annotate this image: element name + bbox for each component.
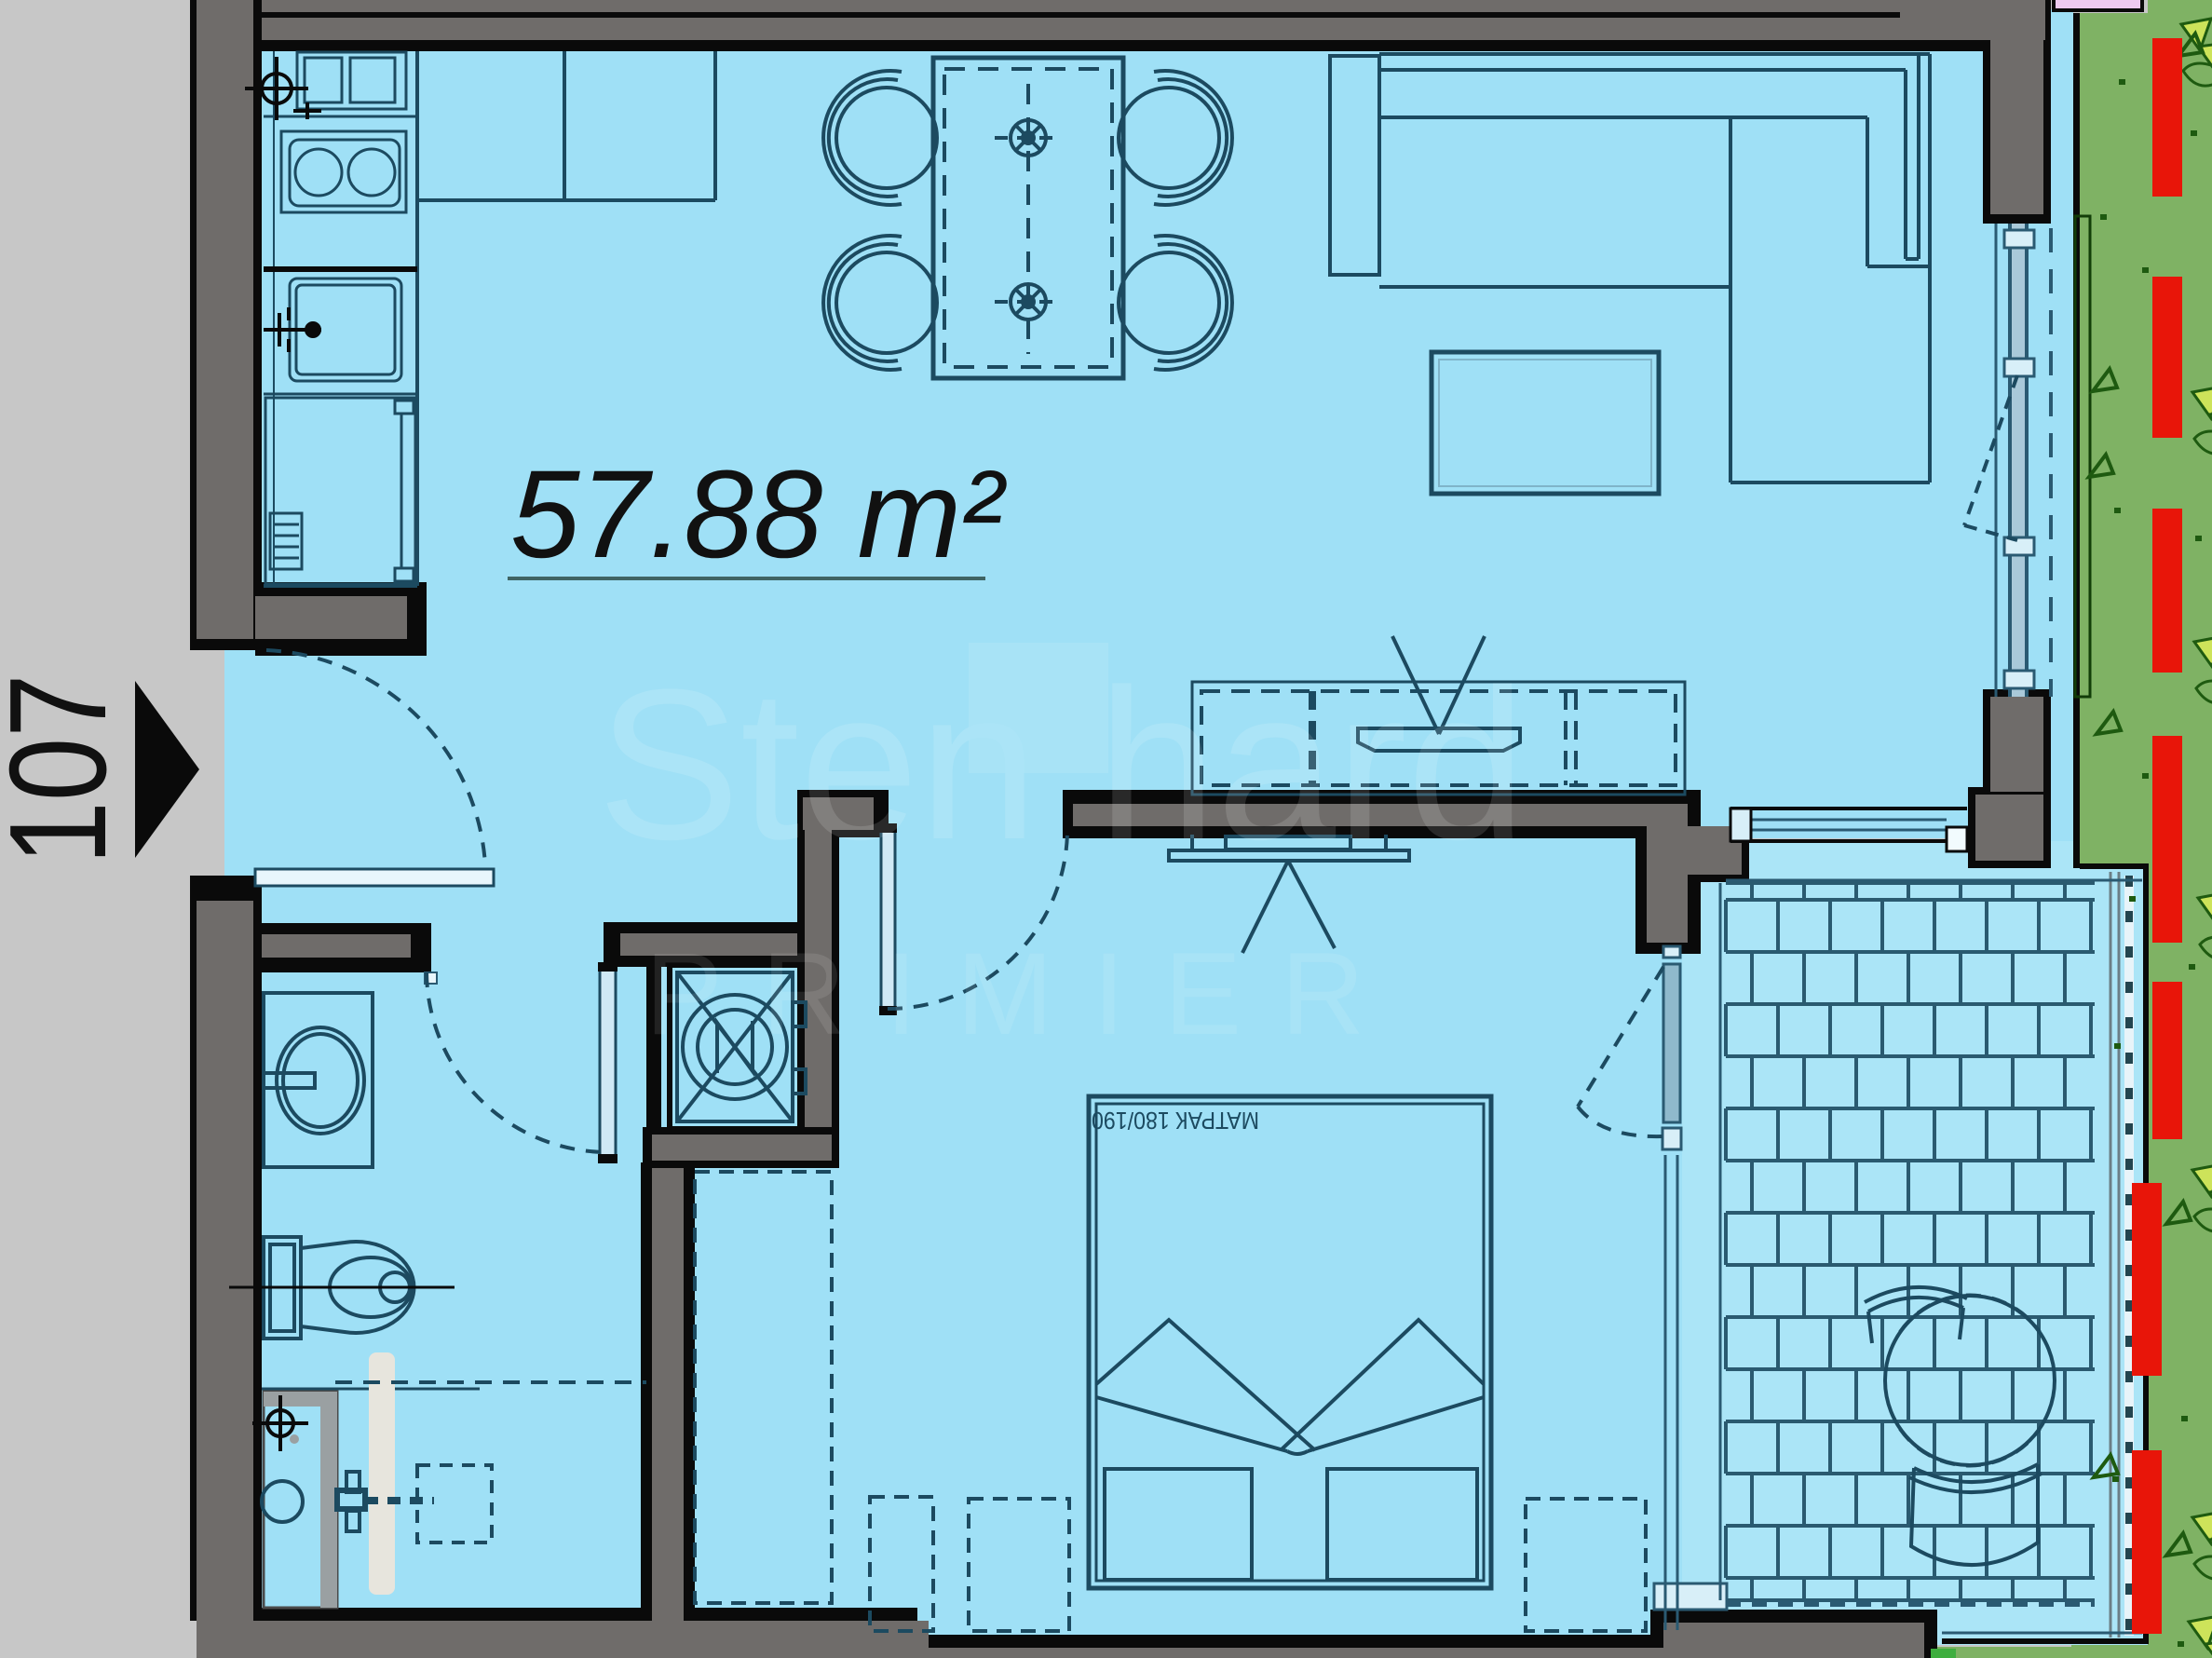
svg-text:МАТРАК 180/190: МАТРАК 180/190	[1092, 1107, 1259, 1135]
svg-text:57.88 m²: 57.88 m²	[510, 445, 1007, 584]
svg-text:PRIMIER: PRIMIER	[645, 930, 1405, 1059]
svg-text:107: 107	[0, 674, 135, 865]
